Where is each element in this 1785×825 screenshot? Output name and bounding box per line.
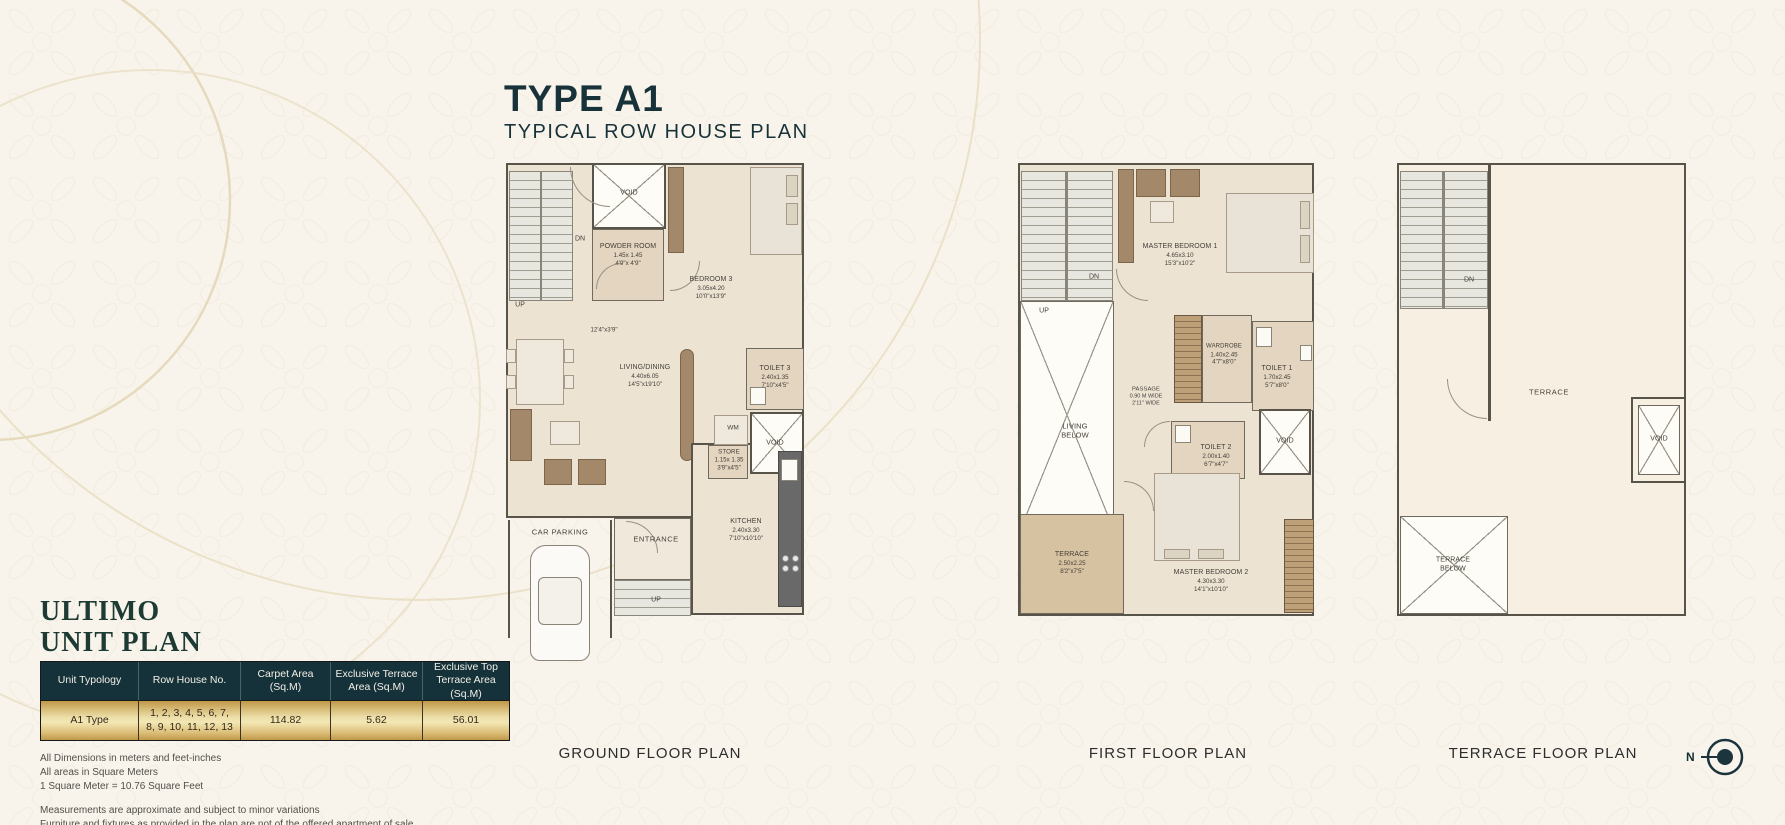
wardrobe-icon [1118,169,1134,263]
coffee-table-icon [550,421,580,445]
unit-plan-table: Unit Typology Row House No. Carpet Area … [40,661,510,741]
note-spacer [40,795,413,804]
ground-floor-plan: VOID POWDER ROOM1.45x 1.454'9"x 4'9" DN … [506,163,808,643]
stair-divider [1065,171,1068,301]
armchair-icon [1136,169,1166,197]
pillow-icon [1300,235,1310,263]
room-label-powder-room: POWDER ROOM1.45x 1.454'9"x 4'9" [600,243,656,267]
unit-plan-heading: UNIT PLAN [40,627,202,658]
table-data-row: A1 Type 1, 2, 3, 4, 5, 6, 7, 8, 9, 10, 1… [41,700,509,740]
stair-divider [540,171,542,301]
page-title: TYPE A1 [504,80,809,119]
page-subtitle: TYPICAL ROW HOUSE PLAN [504,121,809,144]
wc-icon [1256,327,1272,347]
entry-label-up: UP [651,597,661,604]
cell-exclusive-top-terrace-area: 56.01 [423,700,509,740]
room-label-toilet3: TOILET 32.40x1.357'10"x4'5" [760,365,791,389]
pillow-icon [786,203,798,225]
col-header-exclusive-top-terrace-area: Exclusive Top Terrace Area (Sq.M) [423,662,509,700]
room-label-master-bedroom2: MASTER BEDROOM 24.30x3.3014'1"x10'10" [1174,569,1249,593]
burner-icon [792,565,799,572]
room-label-bedroom3: BEDROOM 33.05x4.2010'0"x13'9" [690,276,733,300]
burner-icon [782,555,789,562]
room-label-master-bedroom1: MASTER BEDROOM 14.65x3.1015'3"x10'2" [1143,243,1218,267]
cell-exclusive-terrace-area: 5.62 [331,700,423,740]
armchair-icon [578,459,606,485]
sofa-icon [510,409,532,461]
side-table-icon [1150,201,1174,223]
north-compass: N [1686,734,1756,784]
room-label-toilet1: TOILET 11.70x2.455'7"x8'0" [1262,365,1293,389]
wood-stairs [1174,315,1202,403]
cell-unit-typology: A1 Type [41,700,139,740]
room-label-car-parking: CAR PARKING [532,528,589,537]
brand-name: ULTIMO [40,596,202,627]
pillow-icon [1164,549,1190,559]
note-line: All Dimensions in meters and feet-inches [40,752,413,766]
brand-block: ULTIMO UNIT PLAN [40,596,202,659]
room-label-void-lower: VOID [766,440,784,449]
chair-icon [564,375,574,389]
wc-icon [1175,425,1191,443]
col-header-exclusive-terrace-area: Exclusive Terrace Area (Sq.M) [331,662,423,700]
basin-icon [1300,345,1312,361]
terrace-floor-plan: DN TERRACE VOID TERRACEBELOW [1397,163,1692,623]
room-label-wm: WM [727,425,739,432]
stair-label-dn: DN [1089,274,1099,281]
col-header-row-house-no: Row House No. [139,662,241,700]
room-label-entrance: ENTRANCE [633,535,678,544]
note-line: Measurements are approximate and subject… [40,804,413,818]
pillow-icon [1300,201,1310,229]
cell-row-house-no: 1, 2, 3, 4, 5, 6, 7, 8, 9, 10, 11, 12, 1… [139,700,241,740]
col-header-carpet-area: Carpet Area (Sq.M) [241,662,331,700]
page-title-block: TYPE A1 TYPICAL ROW HOUSE PLAN [504,80,809,144]
room-label-wardrobe: WARDROBE1.40x2.454'7"x8'0" [1206,344,1242,367]
wc-icon [750,387,766,405]
parking-wall [610,520,612,638]
room-label-passage: PASSAGE0.90 M WIDE2'11" WIDE [1130,387,1163,408]
wardrobe-icon [668,167,684,253]
wood-stairs [1284,519,1314,613]
sink-icon [781,459,798,481]
room-label-store: STORE1.15x 1.353'9"x4'5" [715,448,744,471]
col-header-unit-typology: Unit Typology [41,662,139,700]
room-label-void: VOID [1276,438,1294,447]
armchair-icon [544,459,572,485]
stair-label-dn: DN [1464,277,1474,284]
north-label: N [1686,750,1695,764]
room-label-void: VOID [1650,436,1668,445]
dining-table-icon [516,339,564,405]
caption-terrace-floor: TERRACE FLOOR PLAN [1449,745,1638,762]
caption-first-floor: FIRST FLOOR PLAN [1089,745,1247,762]
lobby-wall [1488,163,1491,421]
pillow-icon [1198,549,1224,559]
cell-carpet-area: 114.82 [241,700,331,740]
burner-icon [792,555,799,562]
footnotes: All Dimensions in meters and feet-inches… [40,752,413,825]
stair-label-dn: DN [575,236,585,243]
note-line: 1 Square Meter = 10.76 Square Feet [40,780,413,794]
room-label-toilet2: TOILET 22.00x1.406'7"x4'7" [1201,444,1232,468]
room-label-terrace: TERRACE [1529,387,1569,396]
bed-icon [1154,473,1240,561]
room-label-terrace-below: TERRACEBELOW [1436,556,1470,574]
stair-label-up: UP [1039,308,1049,315]
first-floor-plan: MASTER BEDROOM 14.65x3.1015'3"x10'2" DN … [1018,163,1320,623]
room-label-void-upper: VOID [620,190,638,199]
armchair-icon [1170,169,1200,197]
burner-icon [782,565,789,572]
room-label-living-dining: LIVING/DINING4.40x6.0514'5"x19'10" [620,364,671,388]
chair-icon [506,375,516,389]
note-line: Furniture and fixtures as provided in th… [40,818,413,825]
room-label-kitchen: KITCHEN2.40x3.307'10"x10'10" [729,518,763,542]
chair-icon [564,349,574,363]
compass-icon [1700,734,1750,784]
table-header-row: Unit Typology Row House No. Carpet Area … [41,662,509,700]
caption-ground-floor: GROUND FLOOR PLAN [559,745,742,762]
stair-label-up: UP [515,302,525,309]
room-label-living-below: LIVINGBELOW [1061,422,1089,441]
living-below-area [1020,301,1114,529]
room-label-terrace: TERRACE2.50x2.258'2"x7'5" [1055,551,1089,575]
chair-icon [506,349,516,363]
dimension-note: 12'4"x3'9" [590,327,617,334]
pillow-icon [786,175,798,197]
stair-divider [1442,171,1445,309]
car-cabin-icon [538,577,582,625]
note-line: All areas in Square Meters [40,766,413,780]
parking-wall [508,520,510,638]
